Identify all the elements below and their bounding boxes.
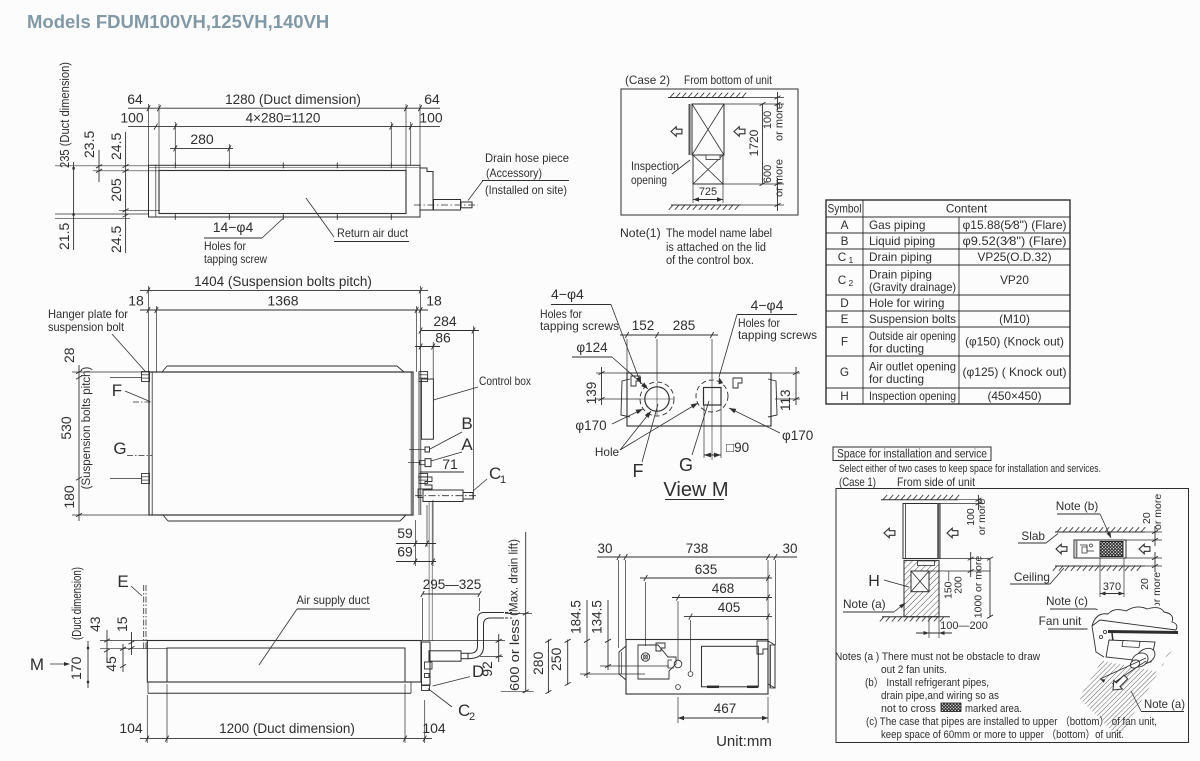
svg-text:(450×450): (450×450) — [987, 389, 1041, 403]
svg-text:or more: or more — [1151, 572, 1163, 608]
svg-text:Select either of two cases to: Select either of two cases to keep space… — [839, 463, 1101, 475]
svg-text:H: H — [840, 389, 849, 403]
svg-text:of the control box.: of the control box. — [666, 253, 754, 267]
svg-text:Liquid piping: Liquid piping — [869, 234, 935, 248]
svg-text:Symbol: Symbol — [828, 202, 862, 216]
svg-text:92: 92 — [479, 661, 495, 677]
svg-text:24.5: 24.5 — [108, 133, 124, 160]
svg-text:113: 113 — [778, 389, 793, 411]
svg-text:(M10): (M10) — [999, 312, 1030, 326]
svg-text:30: 30 — [597, 541, 612, 556]
svg-text:20: 20 — [1139, 578, 1151, 590]
svg-text:Drain hose piece: Drain hose piece — [485, 151, 569, 165]
svg-text:φ15.88(5∕8") (Flare): φ15.88(5∕8") (Flare) — [963, 218, 1067, 232]
svg-text:φ170: φ170 — [782, 428, 813, 443]
svg-text:170: 170 — [68, 656, 84, 680]
svg-text:is attached on the lid: is attached on the lid — [666, 240, 766, 254]
svg-text:(b） Install refrigerant pipes,: (b） Install refrigerant pipes, — [865, 676, 989, 689]
svg-text:Return air duct: Return air duct — [337, 226, 409, 240]
svg-text:(φ150) (Knock out): (φ150) (Knock out) — [965, 335, 1064, 349]
svg-text:86: 86 — [435, 330, 451, 346]
svg-text:Holes for: Holes for — [204, 239, 246, 253]
svg-text:marked area.: marked area. — [965, 703, 1022, 715]
svg-text:18: 18 — [128, 293, 144, 309]
svg-text:Gas piping: Gas piping — [869, 218, 925, 232]
svg-text:E: E — [841, 312, 849, 326]
svg-text:1000 or more: 1000 or more — [973, 556, 985, 619]
svg-text:184.5: 184.5 — [569, 600, 584, 634]
svg-text:F: F — [112, 381, 122, 400]
svg-text:152: 152 — [632, 318, 655, 333]
svg-text:or more: or more — [976, 499, 988, 535]
svg-text:Note(1): Note(1) — [620, 226, 661, 240]
svg-text:370: 370 — [1103, 581, 1121, 593]
svg-text:(Case 2): (Case 2) — [625, 73, 670, 87]
svg-text:Note (a): Note (a) — [843, 597, 886, 611]
svg-text:F: F — [841, 335, 848, 349]
svg-text:G: G — [679, 455, 693, 475]
svg-text:Suspension bolts: Suspension bolts — [869, 312, 956, 326]
svg-text:30: 30 — [782, 541, 797, 556]
svg-text:725: 725 — [699, 186, 717, 198]
svg-text:Note (c): Note (c) — [1046, 594, 1088, 608]
svg-text:1: 1 — [849, 255, 854, 265]
svg-text:View M: View M — [663, 479, 728, 501]
svg-text:600: 600 — [762, 165, 774, 183]
svg-text:E: E — [117, 572, 128, 591]
svg-text:B: B — [841, 234, 849, 248]
svg-text:200: 200 — [953, 576, 965, 594]
svg-text:A: A — [841, 218, 849, 232]
svg-text:keep space of 60mm or more to: keep space of 60mm or more to upper （bot… — [881, 728, 1124, 741]
svg-text:VP20: VP20 — [1000, 273, 1029, 287]
svg-text:G: G — [113, 439, 126, 458]
svg-text:(φ125) ( Knock out): (φ125) ( Knock out) — [963, 365, 1067, 379]
svg-text:2: 2 — [469, 711, 475, 723]
svg-text:Control box: Control box — [479, 374, 531, 388]
svg-text:285: 285 — [673, 318, 696, 333]
svg-text:280: 280 — [530, 651, 546, 675]
svg-text:From side of unit: From side of unit — [897, 475, 976, 489]
svg-text:C: C — [838, 273, 847, 287]
svg-text:Hole for wiring: Hole for wiring — [869, 296, 944, 310]
svg-text:71: 71 — [442, 456, 458, 472]
svg-text:59: 59 — [397, 525, 413, 541]
svg-text:64: 64 — [127, 91, 143, 107]
svg-text:VP25(O.D.32): VP25(O.D.32) — [977, 250, 1051, 264]
svg-text:64: 64 — [424, 91, 440, 107]
svg-text:250: 250 — [548, 647, 564, 671]
svg-text:F: F — [633, 461, 644, 481]
svg-text:280: 280 — [190, 131, 214, 147]
svg-text:100: 100 — [120, 110, 144, 126]
svg-text:(Suspension bolts pitch): (Suspension bolts pitch) — [81, 366, 93, 489]
svg-text:104: 104 — [422, 720, 446, 736]
svg-text:φ9.52(3∕8") (Flare): φ9.52(3∕8") (Flare) — [963, 234, 1067, 248]
svg-text:for ducting: for ducting — [869, 372, 924, 386]
svg-text:14−φ4: 14−φ4 — [213, 219, 254, 235]
svg-text:1: 1 — [500, 474, 506, 486]
svg-text:φ124: φ124 — [576, 340, 608, 355]
svg-text:4−φ4: 4−φ4 — [551, 286, 584, 302]
svg-text:180: 180 — [61, 485, 77, 509]
svg-text:45: 45 — [103, 656, 119, 672]
svg-text:Hole: Hole — [595, 445, 620, 459]
svg-text:Notes (a ) There must not be: Notes (a ) There must not be obstacle to… — [835, 651, 1040, 663]
svg-text:100: 100 — [419, 110, 443, 126]
svg-text:2: 2 — [849, 278, 854, 288]
svg-text:(Gravity drainage): (Gravity drainage) — [869, 280, 956, 294]
svg-text:suspension bolt: suspension bolt — [48, 320, 125, 334]
svg-text:Ceiling: Ceiling — [1014, 570, 1050, 584]
svg-text:235 (Duct dimension): 235 (Duct dimension) — [57, 62, 72, 168]
svg-text:(Duct dimension): (Duct dimension) — [69, 567, 84, 640]
svg-text:(Case 1): (Case 1) — [839, 475, 876, 489]
svg-text:From bottom of unit: From bottom of unit — [684, 73, 773, 87]
svg-text:The model name label: The model name label — [666, 226, 772, 240]
svg-text:530: 530 — [58, 416, 74, 440]
svg-text:21.5: 21.5 — [56, 223, 72, 250]
svg-text:468: 468 — [712, 581, 735, 596]
svg-text:(Installed on site): (Installed on site) — [485, 183, 567, 197]
svg-text:Content: Content — [946, 202, 988, 216]
svg-text:(Accessory): (Accessory) — [486, 166, 542, 180]
svg-text:or more: or more — [774, 103, 786, 141]
svg-text:23.5: 23.5 — [81, 131, 97, 158]
svg-text:Inspection opening: Inspection opening — [869, 389, 956, 403]
svg-text:D: D — [840, 296, 849, 310]
svg-text:drain pipe,and wiring so as: drain pipe,and wiring so as — [881, 690, 999, 702]
svg-text:Note (b): Note (b) — [1056, 499, 1099, 513]
svg-text:284: 284 — [433, 313, 457, 329]
svg-text:Inspection: Inspection — [631, 159, 679, 173]
svg-text:tapping screw: tapping screw — [204, 252, 267, 266]
svg-text:100—200: 100—200 — [940, 620, 988, 632]
svg-text:4−φ4: 4−φ4 — [751, 297, 784, 313]
svg-text:Note (a): Note (a) — [1144, 697, 1185, 711]
svg-text:Unit:mm: Unit:mm — [716, 733, 772, 750]
svg-text:69: 69 — [397, 544, 413, 560]
svg-text:600 or less: 600 or less — [507, 618, 522, 691]
svg-text:(c) The case that pipes are i: (c) The case that pipes are installed to… — [866, 715, 1157, 728]
svg-text:opening: opening — [631, 173, 667, 187]
svg-text:not to cross: not to cross — [881, 703, 936, 715]
svg-text:1200 (Duct dimension): 1200 (Duct dimension) — [219, 721, 355, 736]
svg-text:φ170: φ170 — [575, 418, 606, 433]
svg-text:Hanger plate for: Hanger plate for — [48, 307, 128, 321]
svg-text:Models FDUM100VH,125VH,140VH: Models FDUM100VH,125VH,140VH — [27, 11, 329, 32]
svg-text:(Max. drain lift): (Max. drain lift) — [509, 539, 521, 616]
svg-text:Fan unit: Fan unit — [1039, 614, 1082, 628]
svg-text:Air supply duct: Air supply duct — [297, 593, 371, 607]
svg-text:Space for installation and ser: Space for installation and service — [837, 449, 987, 461]
svg-text:tapping screws: tapping screws — [738, 328, 817, 342]
svg-text:4×280=1120: 4×280=1120 — [246, 111, 321, 126]
svg-text:100: 100 — [762, 111, 774, 129]
svg-text:out 2 fan units.: out 2 fan units. — [881, 664, 947, 676]
svg-text:1404 (Suspension bolts pitch): 1404 (Suspension bolts pitch) — [194, 274, 372, 289]
svg-text:104: 104 — [119, 720, 143, 736]
svg-text:405: 405 — [718, 600, 741, 615]
svg-text:Slab: Slab — [1021, 529, 1045, 543]
svg-text:205: 205 — [108, 178, 124, 202]
svg-text:□90: □90 — [726, 440, 749, 455]
svg-text:1720: 1720 — [747, 129, 761, 156]
svg-text:15: 15 — [114, 616, 130, 632]
svg-text:or more: or more — [1152, 494, 1164, 530]
svg-text:139: 139 — [584, 382, 599, 405]
svg-text:1368: 1368 — [267, 293, 298, 309]
svg-text:738: 738 — [686, 541, 709, 556]
svg-text:28: 28 — [61, 347, 77, 363]
svg-text:for ducting: for ducting — [869, 342, 924, 356]
svg-text:A: A — [461, 435, 473, 454]
svg-text:tapping screws: tapping screws — [540, 319, 619, 333]
svg-text:or more: or more — [774, 159, 786, 197]
svg-text:G: G — [840, 365, 849, 379]
svg-text:635: 635 — [695, 562, 718, 577]
svg-text:H: H — [868, 573, 880, 590]
svg-text:18: 18 — [426, 293, 442, 309]
svg-text:C: C — [838, 250, 847, 264]
svg-text:134.5: 134.5 — [590, 600, 605, 634]
svg-text:467: 467 — [714, 701, 737, 716]
svg-text:B: B — [461, 414, 472, 433]
svg-text:1280 (Duct dimension): 1280 (Duct dimension) — [225, 92, 361, 107]
svg-text:24.5: 24.5 — [108, 226, 124, 253]
svg-text:43: 43 — [87, 616, 103, 632]
svg-text:295—325: 295—325 — [423, 577, 482, 592]
svg-text:M: M — [30, 655, 44, 674]
svg-text:Drain piping: Drain piping — [869, 250, 932, 264]
